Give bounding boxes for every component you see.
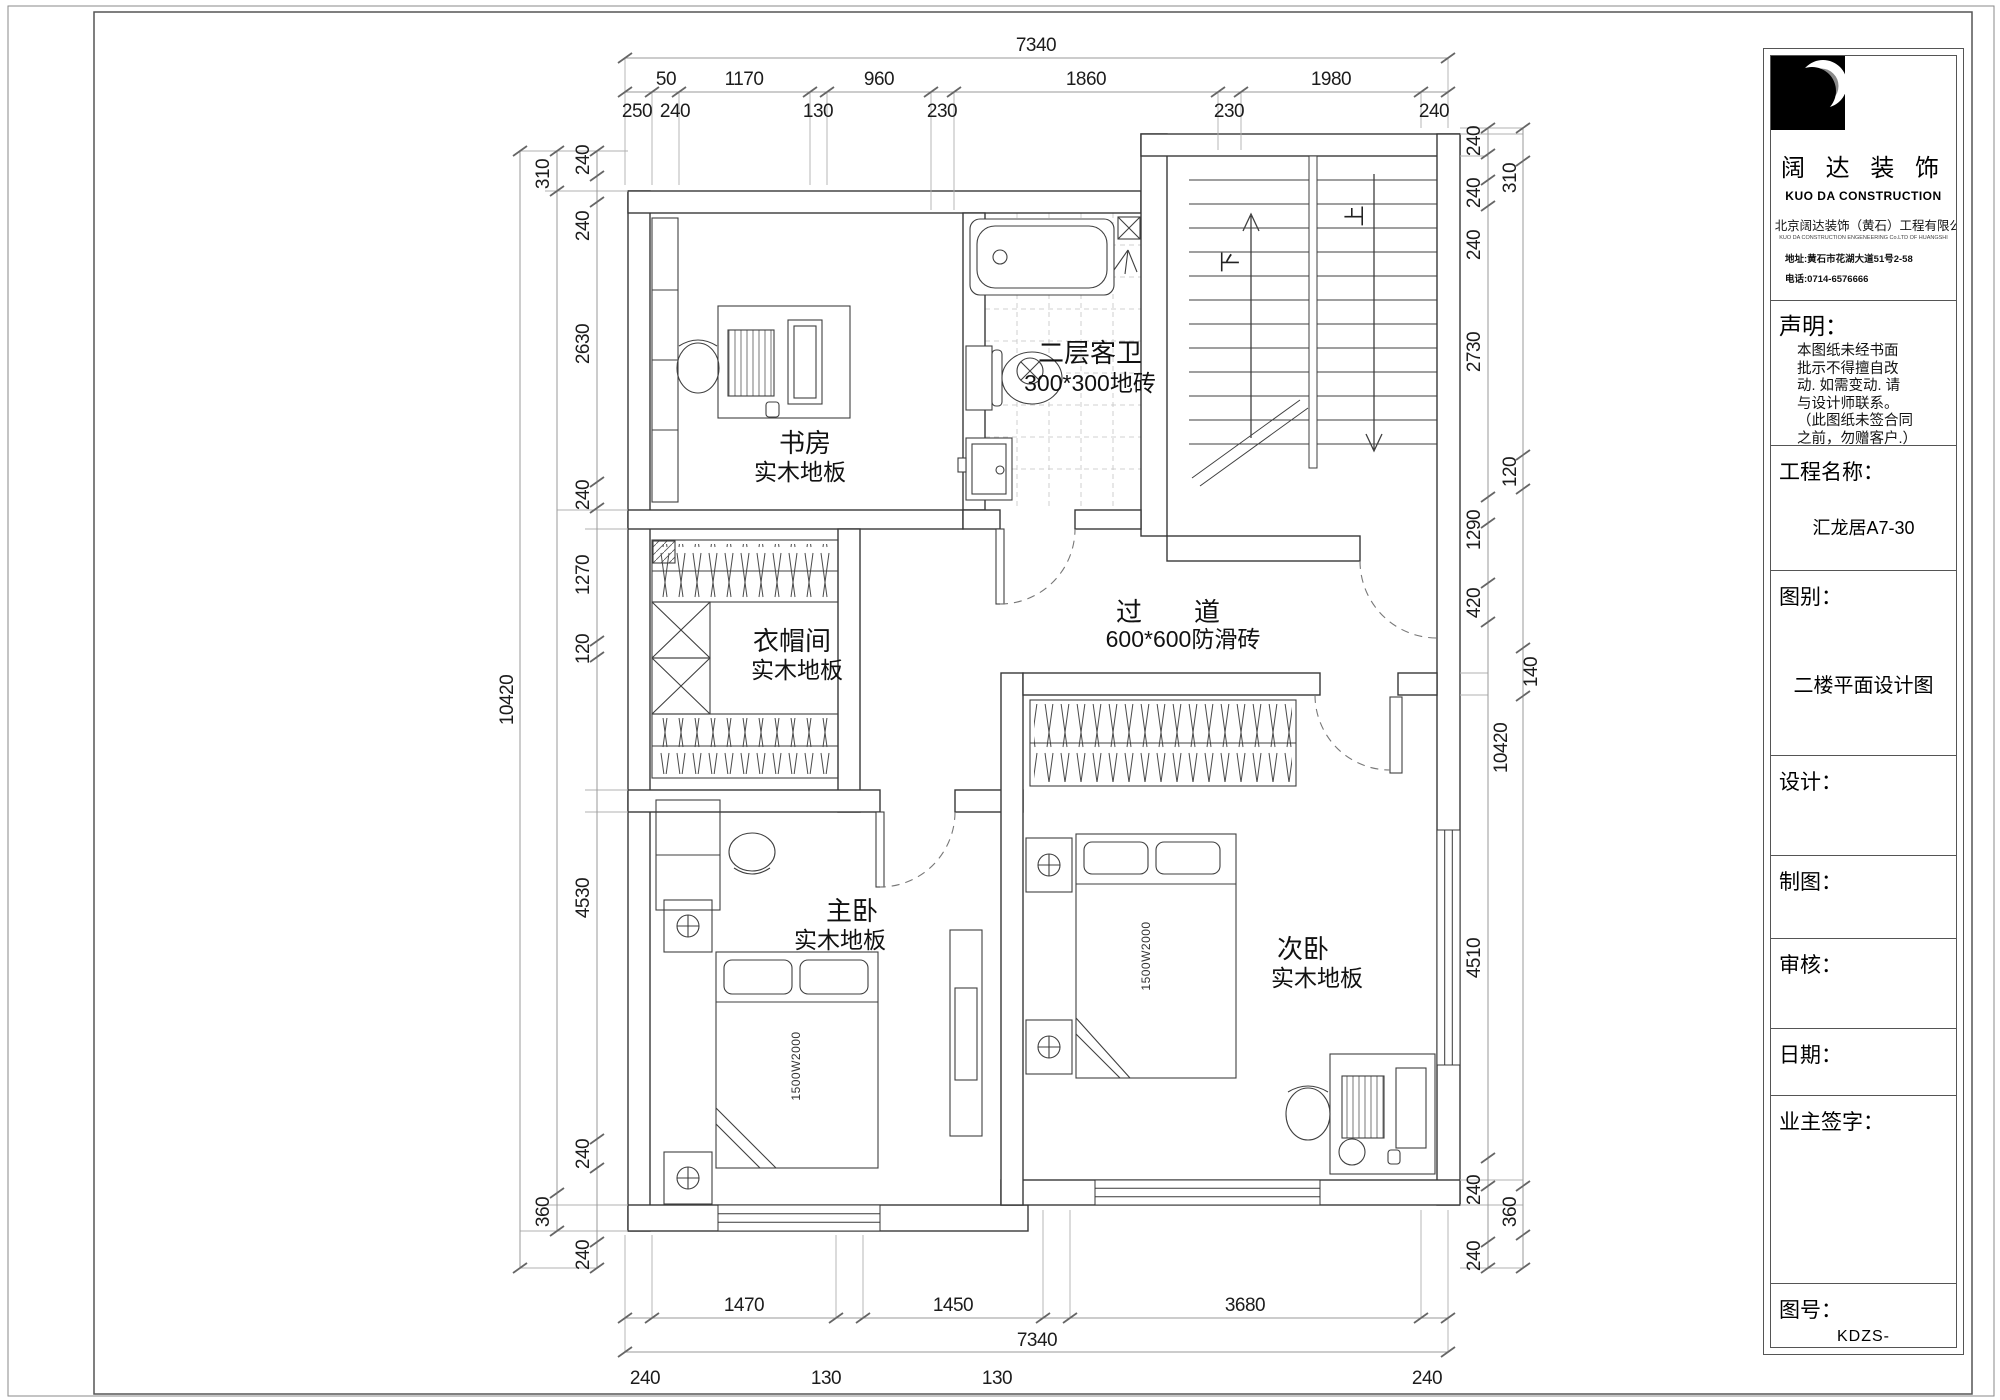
dim-label: 420 [1464,588,1485,618]
company-address: 地址:黄石市花湖大道51号2-58 [1771,251,1956,265]
sheet-type-section: 图别： 二楼平面设计图 [1771,570,1956,755]
designer-label: 设计： [1771,756,1956,796]
dim-label: 10420 [497,675,518,725]
dim-label: 7340 [1016,35,1056,56]
dim-label: 240 [573,480,594,510]
dim-label: 240 [1464,1175,1485,1205]
dim-label: 240 [573,1240,594,1270]
room-label-second: 次卧 [1277,934,1329,964]
designer-section: 设计： [1771,755,1956,855]
dim-label: 250 [622,101,652,122]
stair-up-label: 上 [1344,206,1367,227]
dim-label: 240 [1464,126,1485,156]
sheet-type-label: 图别： [1771,571,1956,611]
dim-label: 3680 [1225,1295,1265,1316]
dim-label: 2630 [573,324,594,364]
dim-label: 1980 [1311,69,1351,90]
statement-line: （此图纸未签合同 [1771,413,1956,431]
dims-left: 10420 310 360 240 240 2630 240 1270 120 … [497,145,594,1270]
toilet-tank [966,346,992,410]
dim-label: 230 [927,101,957,122]
dim-label: 130 [803,101,833,122]
company-phone: 电话:0714-6576666 [1771,271,1956,285]
checker-section: 审核： [1771,938,1956,1028]
drawing-number-section: 图号： KDZS- [1771,1283,1956,1347]
dim-label: 310 [533,159,554,189]
title-block: 阔 达 装 饰 KUO DA CONSTRUCTION 北京阔达装饰（黄石）工程… [1763,48,1964,1355]
dim-label: 240 [1412,1368,1442,1389]
shower-spray [1114,250,1137,274]
room-floor-hall: 600*600防滑砖 [1106,626,1261,652]
company-header: 阔 达 装 饰 KUO DA CONSTRUCTION 北京阔达装饰（黄石）工程… [1771,56,1956,300]
dim-label: 120 [573,634,594,664]
dim-label: 240 [573,1139,594,1169]
statement-line: 之前，勿赠客户.） [1771,431,1956,446]
drawing-number-value: KDZS- [1771,1328,1956,1346]
dim-label: 960 [864,69,894,90]
drafter-section: 制图： [1771,855,1956,938]
dim-label: 4530 [573,878,594,918]
project-value: 汇龙居A7-30 [1771,514,1956,540]
dim-label: 240 [573,211,594,241]
room-label-hall: 过 道 [1116,597,1220,627]
dim-label: 240 [630,1368,660,1389]
second-bed-size: 1500W2000 [1139,921,1153,990]
staircase [1189,156,1437,486]
dim-label: 2730 [1464,332,1485,372]
dim-label: 240 [660,101,690,122]
room-label-study: 书房 [779,428,831,458]
dim-label: 230 [1214,101,1244,122]
master-bedroom-furniture [656,800,982,1204]
project-section: 工程名称： 汇龙居A7-30 [1771,445,1956,570]
dim-label: 1860 [1066,69,1106,90]
dim-label: 7340 [1017,1330,1057,1351]
dim-label: 360 [1500,1197,1521,1227]
floor-plan-canvas: 下 上 [0,0,2000,1400]
date-label: 日期： [1771,1029,1956,1069]
dim-label: 240 [1464,178,1485,208]
dim-label: 240 [573,145,594,175]
project-label: 工程名称： [1771,446,1956,486]
drawing-number-label: 图号： [1771,1284,1956,1324]
room-floor-bath: 300*300地砖 [1024,370,1156,396]
dim-label: 140 [1521,657,1542,687]
room-label-bath: 二层客卫 [1038,338,1142,368]
chair [1286,1088,1330,1140]
room-floor-second: 实木地板 [1271,965,1363,991]
dims-right: 240 240 240 2730 1290 420 4510 240 240 3… [1464,126,1542,1271]
dim-label: 1290 [1464,510,1485,550]
room-label-cloak: 衣帽间 [753,626,831,656]
room-label-master: 主卧 [826,896,878,926]
owner-signature-label: 业主签字： [1771,1096,1956,1136]
brand-name: 阔 达 装 饰 [1771,148,1956,183]
dim-label: 130 [982,1368,1012,1389]
company-name-en: KUO DA CONSTRUCTION ENGENEERING Co.LTD O… [1771,235,1956,241]
brand-name-en: KUO DA CONSTRUCTION [1771,189,1956,203]
company-name: 北京阔达装饰（黄石）工程有限公司 [1775,215,1953,233]
chair [729,833,775,871]
statement-section: 声明： 本图纸未经书面 批示不得擅自改 动. 如需变动. 请 与设计师联系。 （… [1771,300,1956,445]
second-bed [1076,834,1236,1078]
room-floor-study: 实木地板 [754,459,846,485]
dim-label: 1470 [724,1295,764,1316]
dim-label: 1450 [933,1295,973,1316]
checker-label: 审核： [1771,939,1956,979]
sheet-type-value: 二楼平面设计图 [1771,669,1956,698]
statement-line: 动. 如需变动. 请 [1771,378,1956,396]
drawing-sheet: 下 上 [0,0,2000,1400]
room-floor-master: 实木地板 [794,927,886,953]
dim-label: 310 [1500,163,1521,193]
windows [718,830,1460,1231]
dim-label: 130 [811,1368,841,1389]
dims-bottom: 1470 1450 3680 7340 240 130 130 240 [630,1295,1442,1389]
statement-line: 与设计师联系。 [1771,396,1956,414]
dim-label: 1170 [725,69,764,90]
company-logo [1827,70,1901,144]
dim-label: 4510 [1464,938,1485,978]
owner-signature-section: 业主签字： [1771,1095,1956,1283]
master-bed-size: 1500W2000 [789,1031,803,1100]
dim-label: 50 [656,69,676,90]
stair-down-label: 下 [1219,252,1242,273]
date-section: 日期： [1771,1028,1956,1095]
dim-label: 10420 [1491,723,1512,773]
dim-label: 120 [1500,457,1521,487]
dim-label: 240 [1464,230,1485,260]
dim-label: 360 [533,1197,554,1227]
dim-label: 240 [1419,101,1449,122]
drafter-label: 制图： [1771,856,1956,896]
statement-line: 批示不得擅自改 [1771,361,1956,379]
dim-label: 240 [1464,1241,1485,1271]
room-floor-cloak: 实木地板 [751,657,843,683]
statement-line: 本图纸未经书面 [1771,343,1956,361]
dims-top: 7340 50 1170 960 1860 1980 250 240 130 2… [622,35,1449,122]
statement-label: 声明： [1771,301,1956,343]
room-labels: 书房 实木地板 二层客卫 300*300地砖 衣帽间 实木地板 过 道 600*… [751,338,1363,991]
dim-label: 1270 [573,555,594,595]
second-bedroom-furniture [1026,700,1435,1174]
